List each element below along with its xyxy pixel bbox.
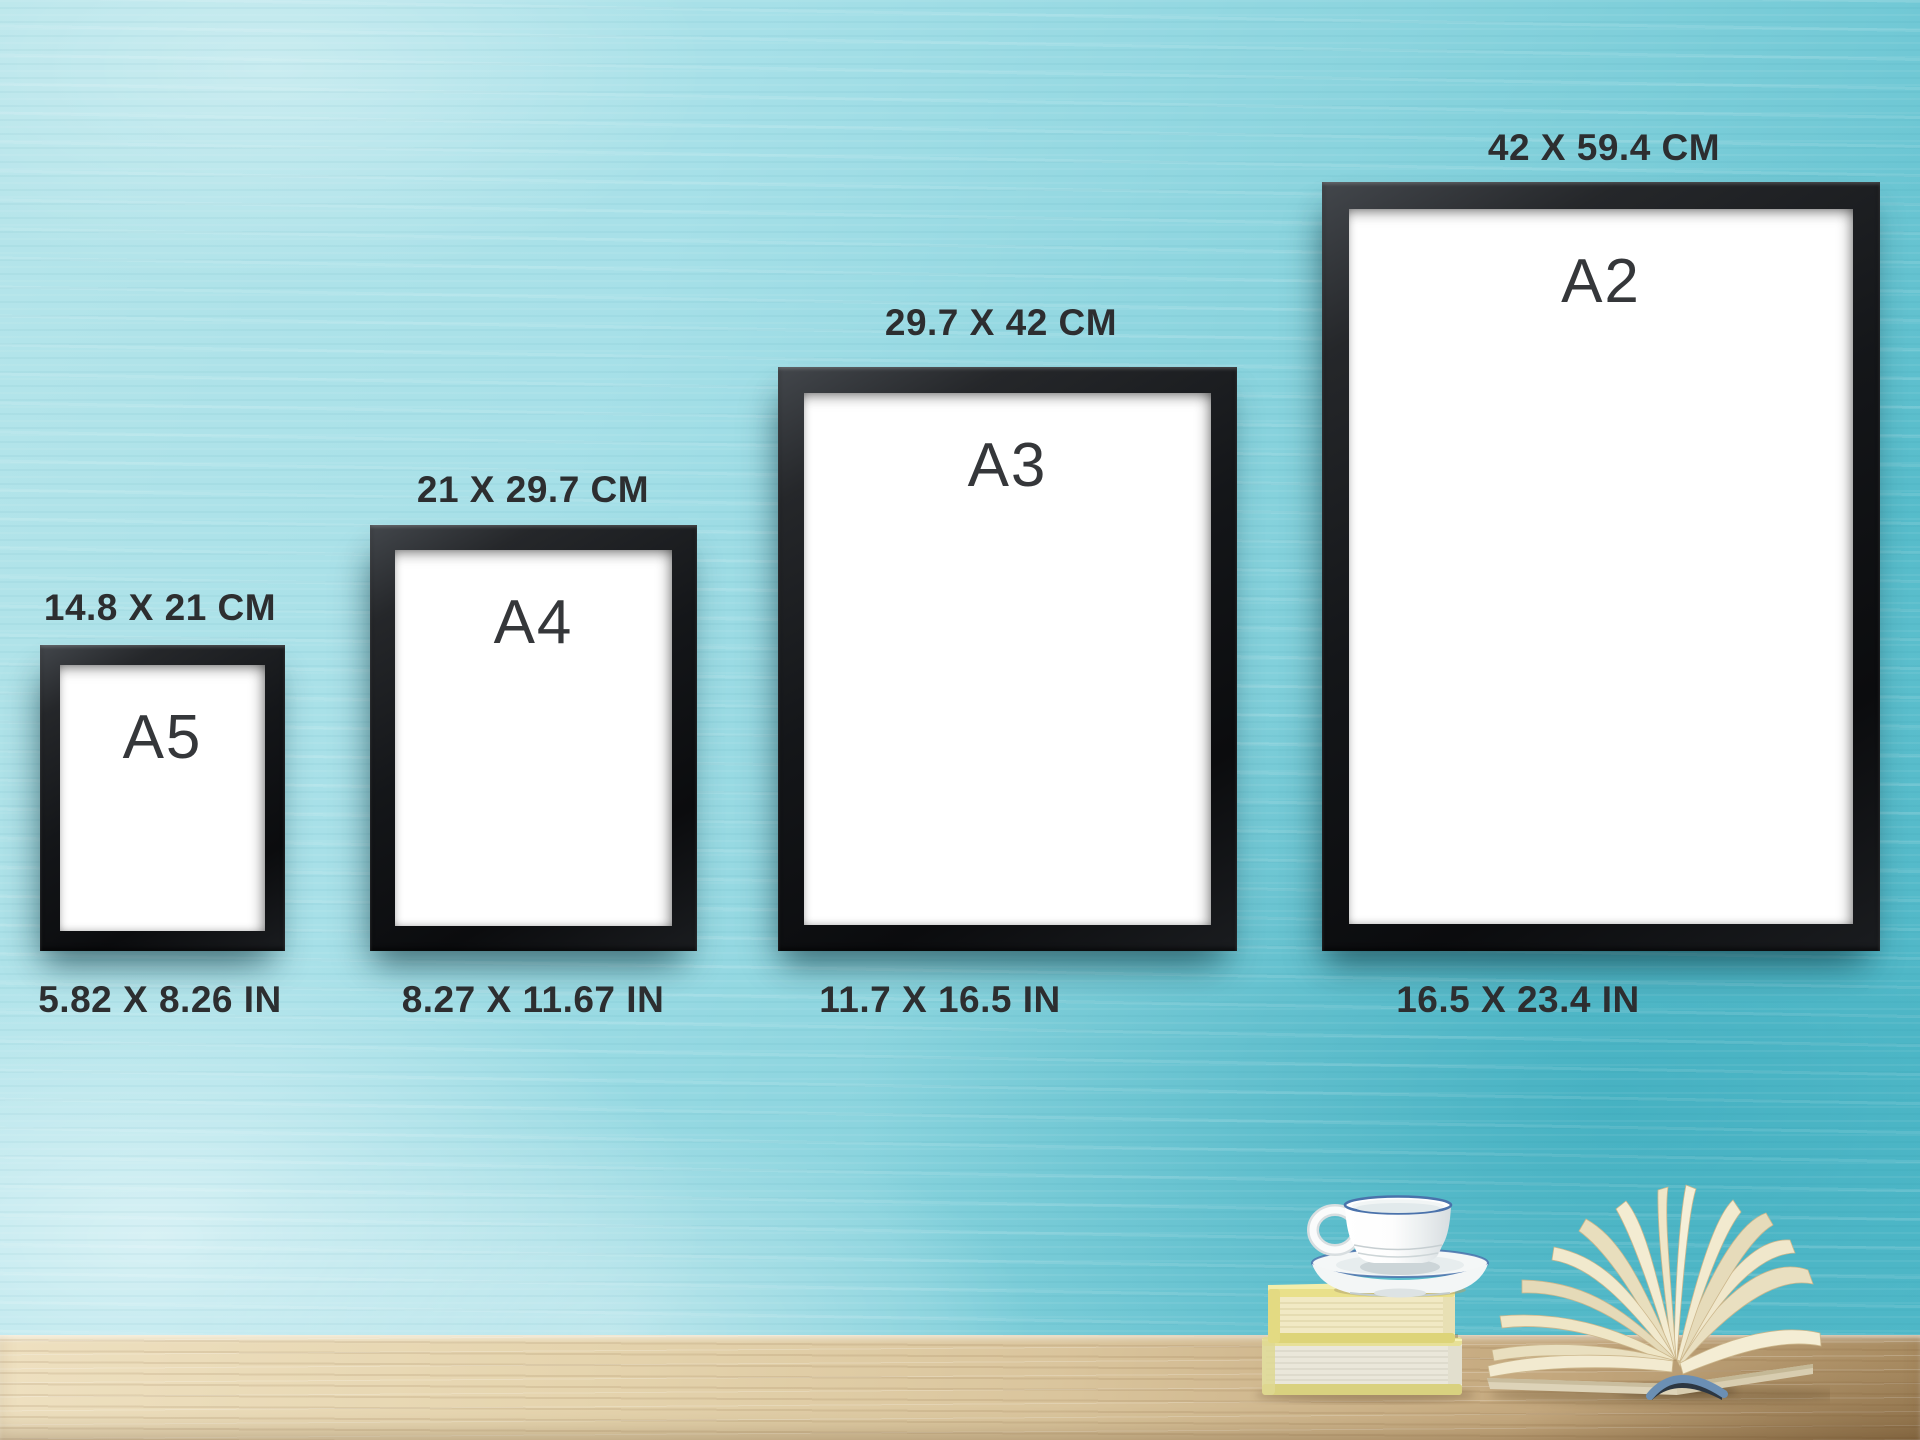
a3-inch-size-label: 11.7 X 16.5 IN (797, 980, 1083, 1020)
a2-paper: A2 (1349, 209, 1853, 924)
open-book-pages (1488, 1185, 1821, 1377)
open-book (1430, 1160, 1830, 1410)
a4-cm-size-label: 21 X 29.7 CM (390, 470, 676, 510)
a5-picture-frame: A5 (40, 645, 285, 951)
a4-picture-frame: A4 (370, 525, 697, 951)
a4-inch-size-label: 8.27 X 11.67 IN (390, 980, 676, 1020)
poster-size-comparison-scene: 14.8 X 21 CM A5 5.82 X 8.26 IN 21 X 29.7… (0, 0, 1920, 1440)
a4-format-label: A4 (395, 550, 672, 658)
a2-format-label: A2 (1349, 209, 1853, 317)
a2-cm-size-label: 42 X 59.4 CM (1461, 128, 1747, 168)
a5-format-label: A5 (60, 665, 265, 773)
a3-picture-frame: A3 (778, 367, 1237, 951)
a5-paper: A5 (60, 665, 265, 931)
a2-inch-size-label: 16.5 X 23.4 IN (1375, 980, 1661, 1020)
a3-format-label: A3 (804, 393, 1211, 501)
a3-paper: A3 (804, 393, 1211, 925)
a5-inch-size-label: 5.82 X 8.26 IN (15, 980, 305, 1020)
a4-paper: A4 (395, 550, 672, 926)
a5-cm-size-label: 14.8 X 21 CM (15, 588, 305, 628)
a2-picture-frame: A2 (1322, 182, 1880, 951)
a3-cm-size-label: 29.7 X 42 CM (858, 303, 1144, 343)
